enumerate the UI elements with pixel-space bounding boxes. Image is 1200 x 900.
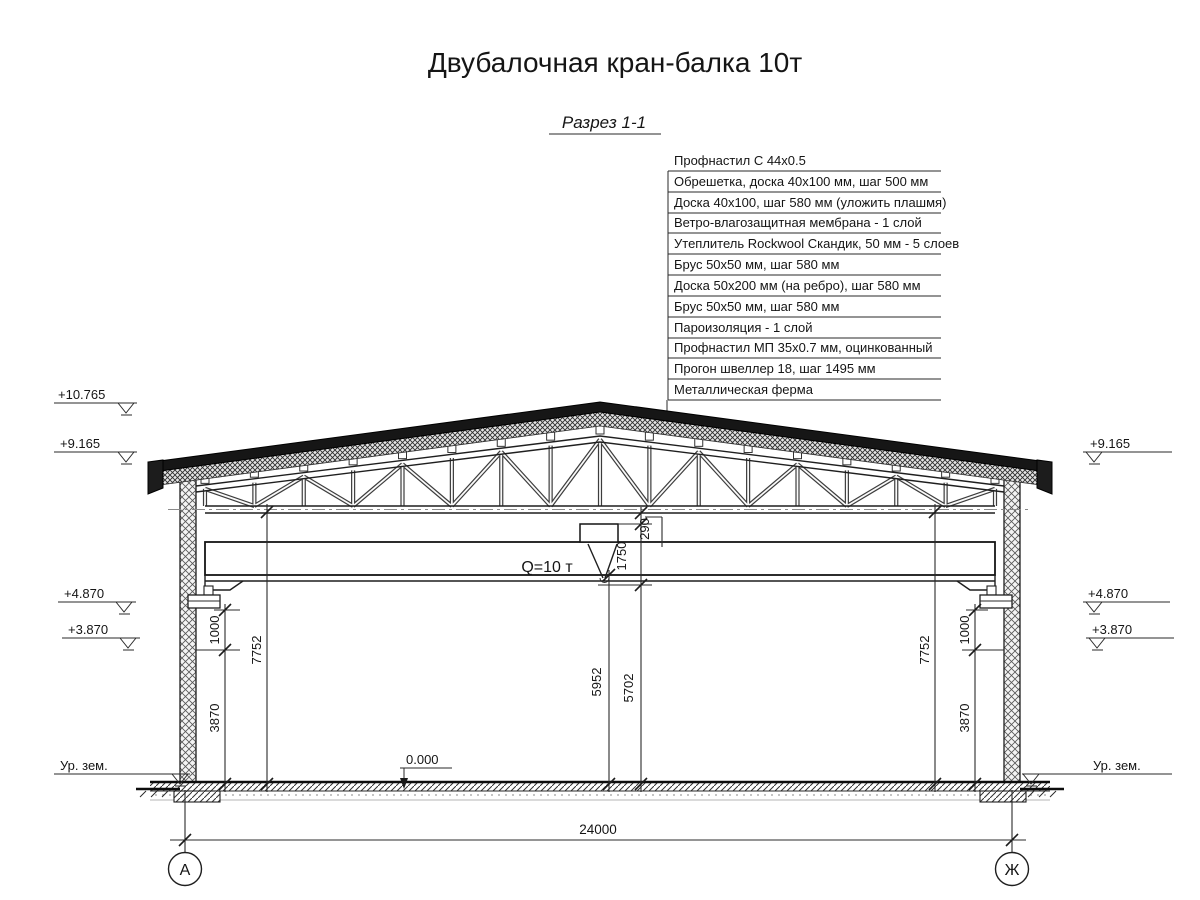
elevation-left-rail: +4.870: [64, 586, 104, 601]
truss-member: [649, 452, 698, 506]
dim-beam-underside: 5952: [589, 668, 604, 697]
callout-row: Брус 50х50 мм, шаг 580 мм: [674, 257, 839, 272]
ground-level-label-right: Ур. зем.: [1093, 758, 1141, 773]
truss-member: [946, 489, 995, 506]
dim-hook-height: 5702: [621, 674, 636, 703]
floor-slab: [136, 782, 1064, 802]
elevation-right-rail: +4.870: [1088, 586, 1128, 601]
elevation-arrow-icon: [120, 638, 136, 650]
callout-row: Утеплитель Rockwool Скандик, 50 мм - 5 с…: [674, 236, 959, 251]
elevation-arrow-icon: [116, 602, 132, 614]
truss-member: [304, 477, 353, 506]
callout-row: Пароизоляция - 1 слой: [674, 320, 813, 335]
dim-hoist-drop: 1750: [614, 542, 629, 571]
crane-capacity-label: Q=10 т: [521, 559, 573, 576]
crane-bridge: Q=10 т: [188, 524, 1012, 608]
callout-row: Доска 50х200 мм (на ребро), шаг 580 мм: [674, 278, 921, 293]
axis-label-left: А: [180, 862, 191, 879]
elevation-right-eave: +9.165: [1090, 436, 1130, 451]
section-label: Разрез 1-1: [562, 113, 646, 132]
truss-member: [353, 464, 402, 506]
callout-row: Ветро-влагозащитная мембрана - 1 слой: [674, 215, 922, 230]
hoist-trolley: [580, 524, 618, 542]
elevation-left-eave: +9.165: [60, 436, 100, 451]
truss-member: [403, 464, 452, 506]
elevation-arrow-icon: [118, 403, 134, 415]
truss-member: [748, 464, 797, 506]
truss-member: [501, 452, 550, 506]
left-footing: [174, 791, 220, 802]
axis-label-right: Ж: [1005, 862, 1020, 879]
elevation-arrow-icon: [1089, 638, 1105, 650]
roof-layers-callout: Профнастил С 44х0.5 Обрешетка, доска 40х…: [667, 153, 959, 414]
elevation-left-bracket: +3.870: [68, 622, 108, 637]
elevation-left-ridge: +10.765: [58, 387, 105, 402]
dim-right-rail-offset: 1000: [957, 616, 972, 645]
callout-row: Обрешетка, доска 40х100 мм, шаг 500 мм: [674, 174, 928, 189]
elevation-right-bracket: +3.870: [1092, 622, 1132, 637]
truss-member: [254, 477, 303, 506]
grid-axes: А Ж: [169, 853, 1029, 886]
dim-right-chord-height: 7752: [917, 636, 932, 665]
elevation-arrow-icon: [1086, 602, 1102, 614]
drawing-canvas: Двубалочная кран-балка 10т Разрез 1-1 Пр…: [0, 0, 1200, 900]
dim-left-bracket-height: 3870: [207, 704, 222, 733]
truss-member: [798, 464, 847, 506]
callout-row: Доска 40х100, шаг 580 мм (уложить плашмя…: [674, 195, 946, 210]
dim-left-chord-height: 7752: [249, 636, 264, 665]
purlin: [596, 426, 604, 434]
dim-span: 24000: [579, 822, 617, 837]
truss-member: [551, 440, 600, 507]
drawing-sheet: Двубалочная кран-балка 10т Разрез 1-1 Пр…: [0, 0, 1200, 900]
dim-chord-gap: 290: [637, 518, 652, 540]
right-wheel: [987, 586, 996, 595]
callout-row: Прогон швеллер 18, шаг 1495 мм: [674, 361, 876, 376]
dim-right-bracket-height: 3870: [957, 704, 972, 733]
callout-row: Брус 50х50 мм, шаг 580 мм: [674, 299, 839, 314]
truss-member: [896, 477, 945, 506]
ground-level-label-left: Ур. зем.: [60, 758, 108, 773]
right-wall: [1004, 478, 1020, 782]
truss-member: [205, 489, 254, 506]
callout-row: Металлическая ферма: [674, 382, 814, 397]
left-wall: [180, 478, 196, 782]
dim-left-rail-offset: 1000: [207, 616, 222, 645]
elevation-arrow-icon: [1086, 452, 1102, 464]
left-eave-fascia: [148, 460, 163, 494]
left-wheel: [204, 586, 213, 595]
truss-member: [847, 477, 896, 506]
callout-row: Профнастил С 44х0.5: [674, 153, 806, 168]
truss-member: [600, 440, 649, 507]
floor-level-label: 0.000: [406, 752, 439, 767]
right-eave-fascia: [1037, 460, 1052, 494]
page-title: Двубалочная кран-балка 10т: [428, 47, 803, 78]
elevation-arrow-icon: [118, 452, 134, 464]
callout-row: Профнастил МП 35х0.7 мм, оцинкованный: [674, 340, 932, 355]
right-footing: [980, 791, 1026, 802]
